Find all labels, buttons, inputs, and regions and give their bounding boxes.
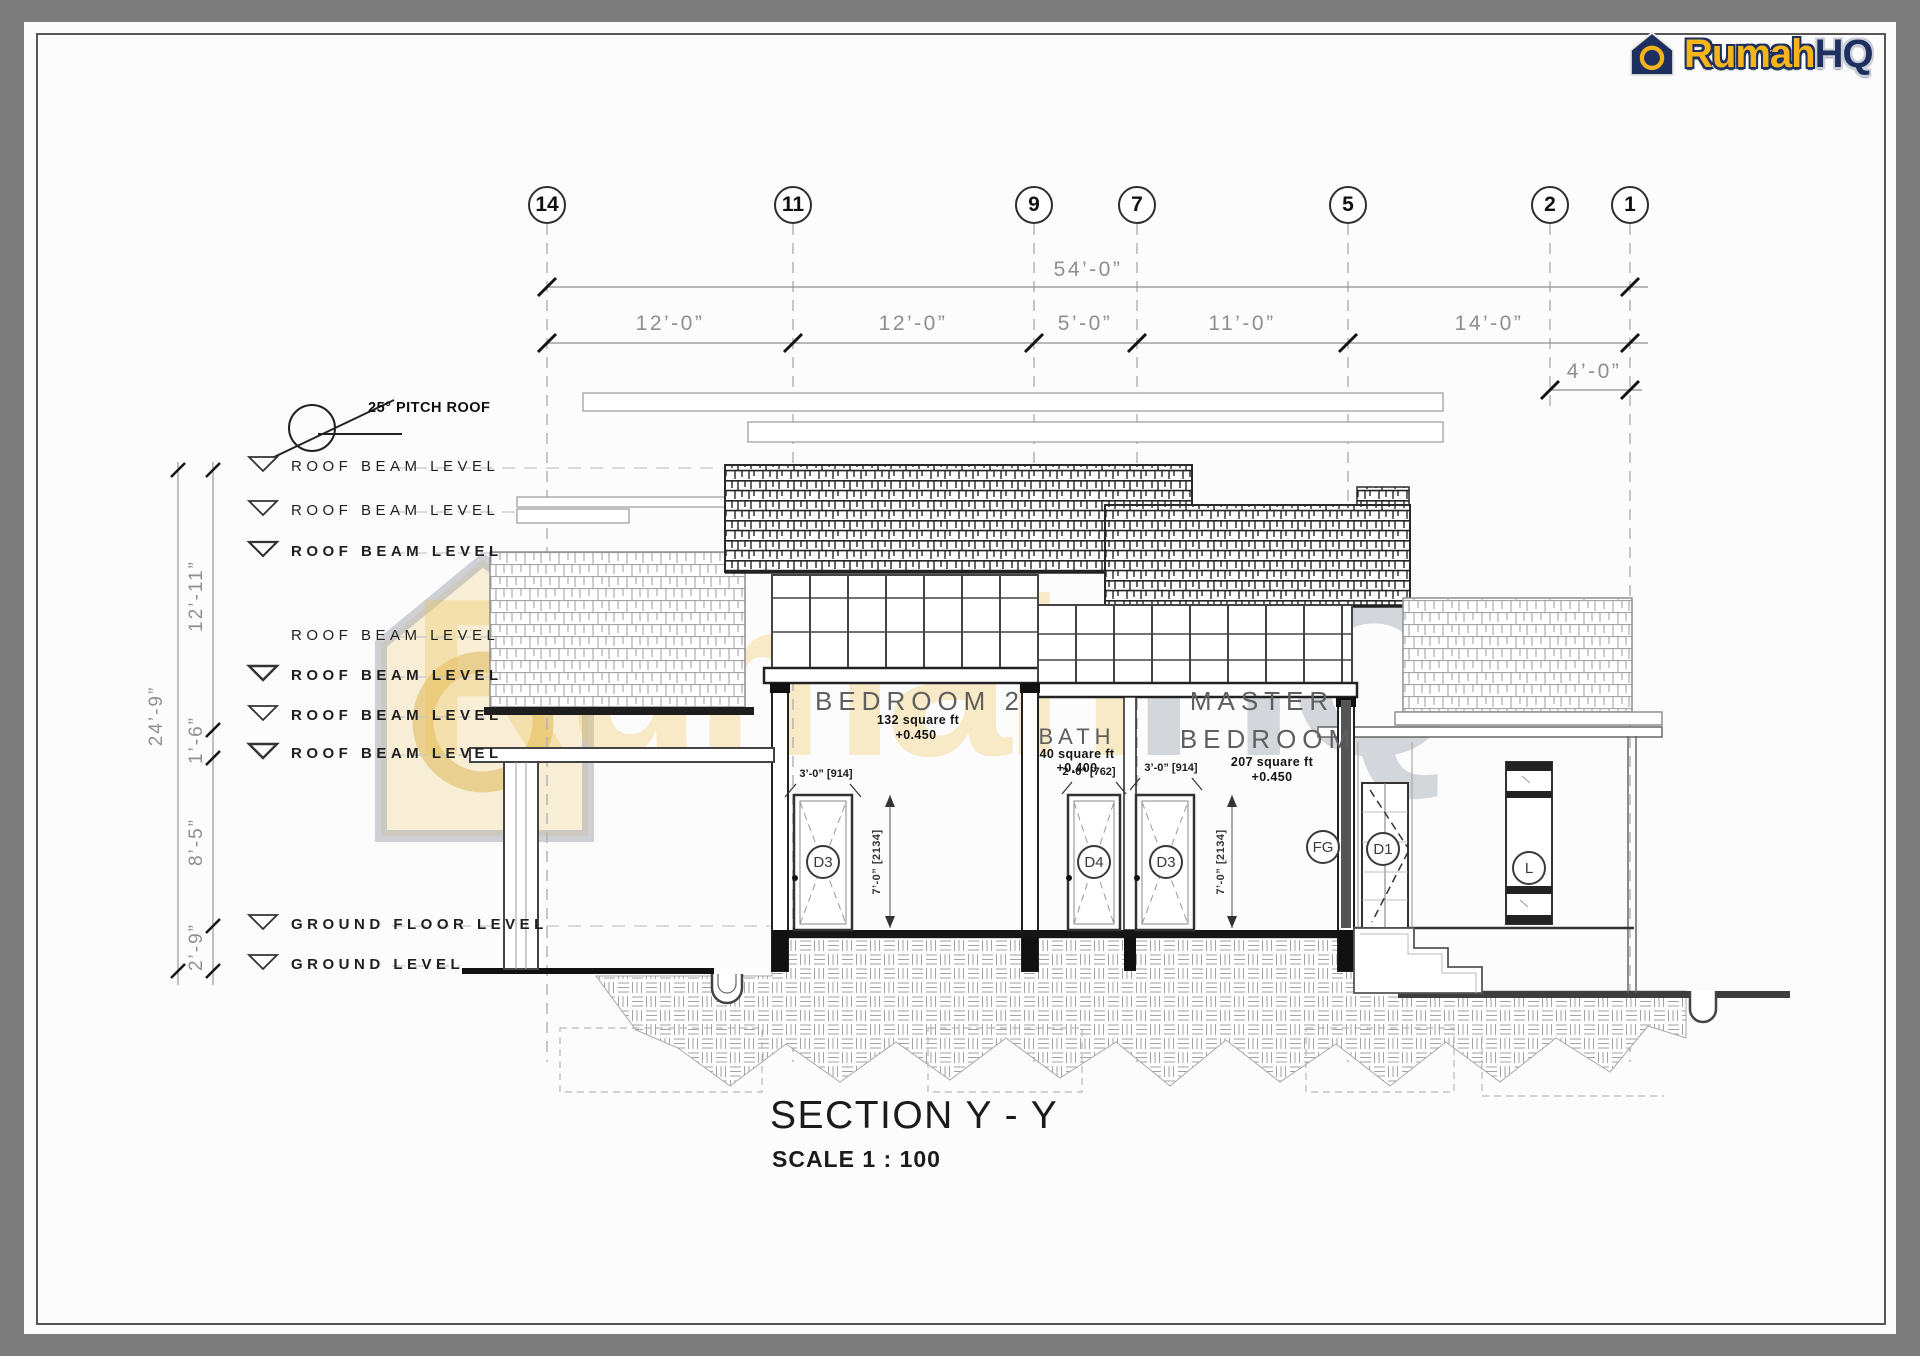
tag-door-d3a: D3 xyxy=(806,845,840,879)
roof-pitch-note: 25° PITCH ROOF xyxy=(368,400,490,416)
dim-height-1: 12’-11” xyxy=(186,560,208,632)
drawing-title: SECTION Y - Y xyxy=(770,1094,1058,1138)
level-roof-beam-2: ROOF BEAM LEVEL xyxy=(291,502,499,519)
level-roof-beam-1: ROOF BEAM LEVEL xyxy=(291,458,499,475)
clerestory-bedroom2 xyxy=(772,575,1038,668)
level-roof-beam-6: ROOF BEAM LEVEL xyxy=(291,707,503,724)
level-roof-beam-5: ROOF BEAM LEVEL xyxy=(291,667,503,684)
gutter-left xyxy=(712,974,742,1003)
dim-seg-14-11: 12’-0” xyxy=(636,312,705,336)
tag-window-l: L xyxy=(1512,851,1546,885)
tag-door-d4: D4 xyxy=(1077,845,1111,879)
grid-bubble-1: 1 xyxy=(1611,186,1649,224)
dim-door-d4-width: 2’-6” [762] xyxy=(1062,766,1115,778)
header-bedroom2 xyxy=(764,668,1052,683)
drawing-sheet: RumahHQ xyxy=(0,0,1920,1356)
level-markers xyxy=(249,457,277,969)
dim-overall-width: 54’-0” xyxy=(1054,258,1123,282)
brand-name: RumahHQ xyxy=(1684,32,1873,77)
level-roof-beam-3: ROOF BEAM LEVEL xyxy=(291,543,503,560)
porch-canopy-right xyxy=(1318,727,1662,737)
tag-door-d1: D1 xyxy=(1366,832,1400,866)
clerestory-master xyxy=(1038,605,1352,683)
porch-canopy-left xyxy=(470,748,774,762)
dimension-lines-top xyxy=(547,287,1648,390)
room-master-area: 207 square ft xyxy=(1231,755,1313,769)
brand-name-secondary: HQ xyxy=(1815,32,1873,76)
grid-bubble-11: 11 xyxy=(774,186,812,224)
grid-bubble-14: 14 xyxy=(528,186,566,224)
dim-height-2: 1’-6” xyxy=(186,716,208,764)
dim-overall-height: 24’-9” xyxy=(146,686,168,747)
dim-door-d3a-width: 3’-0” [914] xyxy=(799,768,852,780)
dim-door-d3b-width: 3’-0” [914] xyxy=(1144,762,1197,774)
dim-seg-11-9: 12’-0” xyxy=(879,312,948,336)
roof-porch-shingles xyxy=(1403,598,1632,712)
floor-slab xyxy=(788,930,1338,938)
roof-left-shingles xyxy=(490,552,745,707)
room-master-level: +0.450 xyxy=(1252,770,1293,784)
grid-bubble-7: 7 xyxy=(1118,186,1156,224)
dim-height-4: 2’-9” xyxy=(186,923,208,971)
room-master-name-line2: BEDROOM xyxy=(1180,724,1356,755)
dim-offset-2-1: 4’-0” xyxy=(1567,360,1622,384)
grid-bubble-2: 2 xyxy=(1531,186,1569,224)
grid-bubble-5: 5 xyxy=(1329,186,1367,224)
room-bedroom2-level: +0.450 xyxy=(896,728,937,742)
brand-logo: RumahHQ xyxy=(1628,30,1873,78)
room-master-name-line1: MASTER xyxy=(1190,686,1334,717)
level-roof-beam-4: ROOF BEAM LEVEL xyxy=(291,627,499,644)
room-bath-area: 40 square ft xyxy=(1040,747,1115,761)
roof-porch-fascia xyxy=(1395,712,1662,725)
brand-house-icon xyxy=(1628,30,1676,78)
dimension-ticks-top xyxy=(538,278,1639,399)
window-l xyxy=(1506,762,1552,924)
dim-seg-5-1: 14’-0” xyxy=(1455,312,1524,336)
grid-bubble-9: 9 xyxy=(1015,186,1053,224)
dim-door-height-2: 7’-0” [2134] xyxy=(1215,829,1227,894)
roof-master-shingles xyxy=(1105,505,1410,606)
level-roof-beam-7: ROOF BEAM LEVEL xyxy=(291,745,503,762)
ground-line-left xyxy=(462,968,714,974)
brand-name-primary: Rumah xyxy=(1684,32,1815,76)
tag-door-d3b: D3 xyxy=(1149,845,1183,879)
level-ground: GROUND LEVEL xyxy=(291,956,464,973)
drawing-scale: SCALE 1 : 100 xyxy=(772,1146,941,1173)
gutter-right xyxy=(1690,991,1716,1022)
entry-steps xyxy=(1354,928,1482,993)
roof-left-fascia xyxy=(484,707,754,715)
dim-height-3: 8’-5” xyxy=(186,818,208,866)
foundation-hatch xyxy=(596,938,1686,1086)
level-ground-floor: GROUND FLOOR LEVEL xyxy=(291,916,548,933)
dim-seg-7-5: 11’-0” xyxy=(1208,312,1275,336)
tag-fixed-glass: FG xyxy=(1306,830,1340,864)
room-bedroom2-area: 132 square ft xyxy=(877,713,959,727)
porch-column-left xyxy=(504,762,538,969)
dim-seg-9-7: 5’-0” xyxy=(1058,312,1113,336)
dim-door-height-1: 7’-0” [2134] xyxy=(871,829,883,894)
